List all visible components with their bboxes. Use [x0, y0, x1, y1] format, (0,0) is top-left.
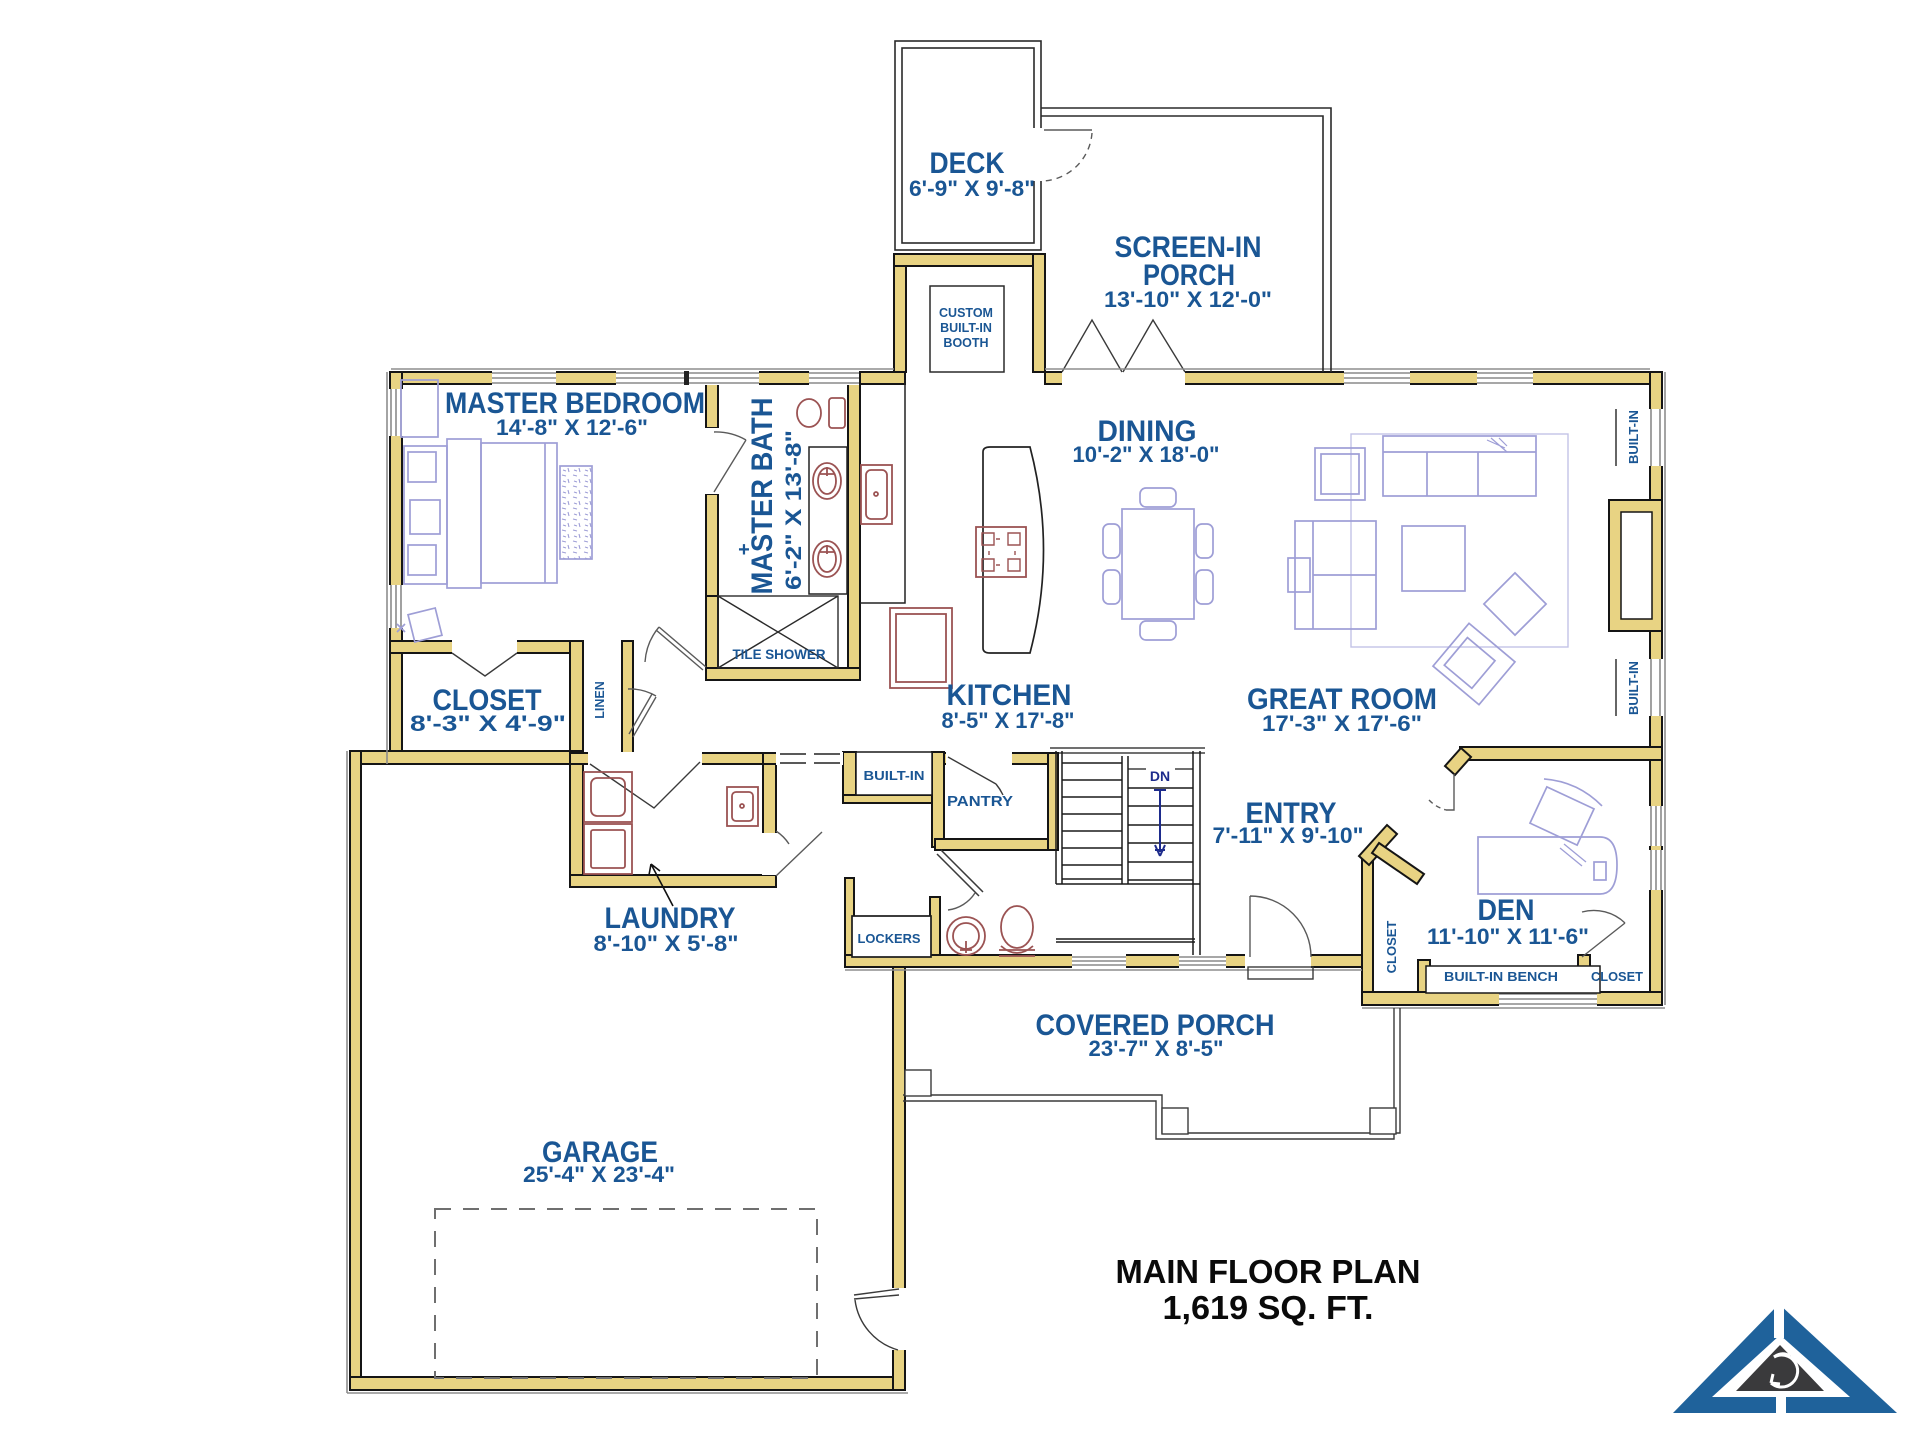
svg-text:11'-10" X 11'-6": 11'-10" X 11'-6"	[1427, 924, 1589, 949]
svg-text:6'-2" X 13'-8": 6'-2" X 13'-8"	[781, 430, 806, 590]
svg-text:LOCKERS: LOCKERS	[858, 931, 921, 946]
svg-text:8'-5" X 17'-8": 8'-5" X 17'-8"	[942, 708, 1075, 733]
svg-text:BUILT-IN: BUILT-IN	[864, 768, 925, 783]
svg-text:DN: DN	[1150, 768, 1170, 784]
svg-text:BUILT-IN: BUILT-IN	[1626, 410, 1641, 464]
svg-text:DEN: DEN	[1478, 894, 1535, 927]
svg-text:PANTRY: PANTRY	[947, 794, 1013, 810]
svg-text:8'-3" X 4'-9": 8'-3" X 4'-9"	[410, 711, 566, 736]
svg-text:6'-9" X 9'-8": 6'-9" X 9'-8"	[909, 176, 1035, 201]
svg-text:23'-7" X 8'-5": 23'-7" X 8'-5"	[1089, 1036, 1224, 1061]
svg-text:CUSTOM: CUSTOM	[939, 306, 993, 320]
svg-text:TILE SHOWER: TILE SHOWER	[733, 646, 826, 662]
svg-text:8'-10" X 5'-8": 8'-10" X 5'-8"	[594, 931, 739, 956]
svg-text:BOOTH: BOOTH	[943, 336, 988, 350]
svg-text:MASTER BATH: MASTER BATH	[746, 398, 779, 595]
svg-text:MAIN FLOOR PLAN: MAIN FLOOR PLAN	[1116, 1253, 1421, 1290]
svg-text:7'-11" X 9'-10": 7'-11" X 9'-10"	[1213, 823, 1364, 848]
svg-text:CLOSET: CLOSET	[1384, 921, 1399, 974]
svg-text:CLOSET: CLOSET	[1591, 970, 1643, 984]
svg-text:1,619 SQ. FT.: 1,619 SQ. FT.	[1163, 1289, 1374, 1326]
svg-text:+: +	[738, 539, 750, 561]
svg-text:10'-2" X 18'-0": 10'-2" X 18'-0"	[1073, 442, 1220, 467]
svg-text:LINEN: LINEN	[593, 681, 607, 719]
svg-text:13'-10" X 12'-0": 13'-10" X 12'-0"	[1104, 287, 1272, 312]
svg-text:25'-4" X 23'-4": 25'-4" X 23'-4"	[523, 1162, 675, 1187]
svg-text:BUILT-IN BENCH: BUILT-IN BENCH	[1444, 969, 1558, 984]
svg-text:17'-3" X 17'-6": 17'-3" X 17'-6"	[1262, 711, 1422, 736]
svg-text:BUILT-IN: BUILT-IN	[1626, 661, 1641, 715]
svg-text:BUILT-IN: BUILT-IN	[940, 321, 992, 335]
svg-text:14'-8" X 12'-6": 14'-8" X 12'-6"	[496, 415, 648, 440]
